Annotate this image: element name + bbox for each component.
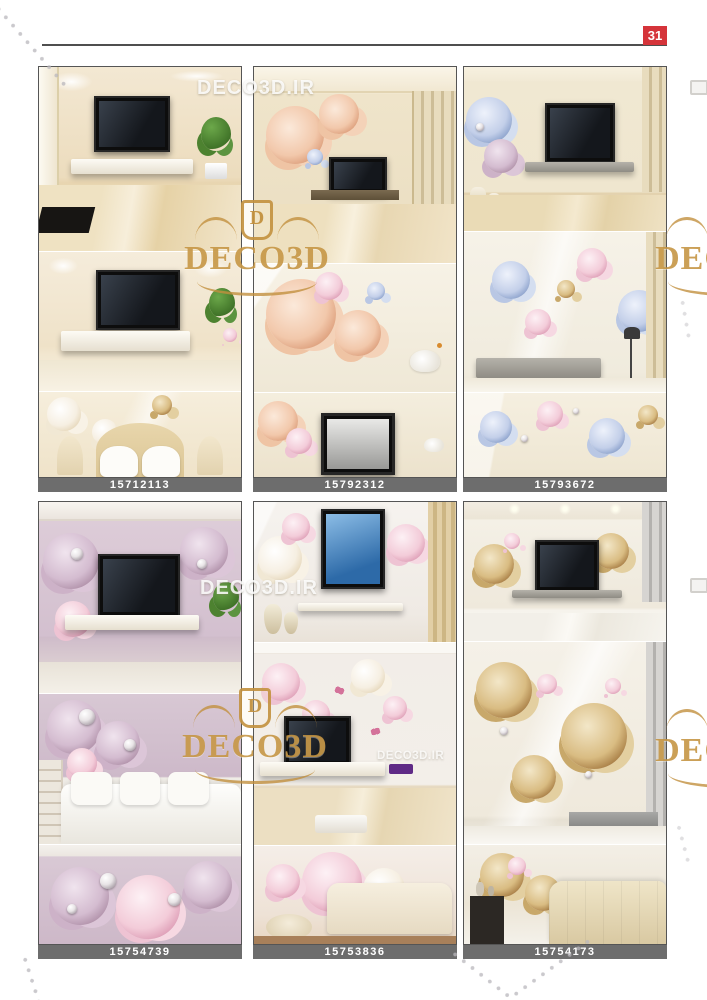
ceiling: [39, 502, 241, 521]
cushion: [120, 772, 160, 805]
pearl: [124, 739, 136, 751]
product-tile: 15754739: [38, 501, 242, 959]
floor: [464, 195, 666, 231]
floor-lamp: [630, 336, 632, 378]
product-tile: 15792312: [253, 66, 457, 492]
pearl: [476, 123, 484, 131]
flower-cluster: [492, 261, 530, 299]
sofa: [549, 881, 666, 944]
flower-cluster: [466, 97, 512, 143]
flower-cluster: [286, 428, 312, 454]
flower-cluster: [47, 397, 81, 431]
flower-cluster: [307, 149, 323, 165]
mural-closeup-scene: [39, 845, 241, 944]
swan: [424, 438, 444, 452]
flower-cluster: [480, 411, 512, 443]
flower-cluster: [258, 536, 302, 580]
coffee-table: [39, 207, 95, 233]
margin-glyph-icon: [690, 80, 707, 95]
swan: [410, 350, 440, 372]
media-console: [260, 762, 385, 776]
flower-cluster: [638, 405, 658, 425]
flower-cluster: [51, 867, 109, 925]
flower-cluster: [557, 280, 575, 298]
mural-scene: [464, 642, 666, 844]
media-console: [476, 358, 601, 377]
flower-cluster: [387, 524, 425, 562]
pearl: [197, 559, 207, 569]
mural-closeup-scene: [464, 393, 666, 477]
ceiling: [254, 643, 456, 654]
pearl: [521, 435, 528, 442]
pearl: [573, 408, 579, 414]
flower-cluster: [577, 248, 607, 278]
mural-scene: [464, 232, 666, 392]
flourish-icon: [666, 709, 707, 732]
product-code: 15793672: [463, 478, 667, 492]
product-photo: [463, 501, 667, 945]
window: [39, 67, 59, 199]
floor: [39, 360, 241, 391]
product-tile: 15712113: [38, 66, 242, 492]
lamp: [57, 436, 83, 475]
lamp: [197, 436, 223, 475]
flower-cluster: [351, 659, 385, 693]
media-console: [525, 162, 634, 172]
media-console: [71, 159, 192, 174]
tv-screen: [321, 509, 386, 589]
pearl: [168, 893, 181, 906]
pearl: [500, 727, 508, 735]
tv-screen: [329, 157, 388, 194]
pearl: [585, 771, 592, 778]
leaf-cluster: [474, 544, 514, 584]
media-console: [298, 603, 403, 611]
pearl-string-decoration: [20, 955, 45, 1000]
tv-screen: [321, 413, 396, 474]
slat-panel: [642, 67, 666, 192]
cushion: [168, 772, 208, 805]
cushion: [71, 772, 111, 805]
vase: [476, 882, 484, 896]
flower-cluster: [484, 139, 518, 173]
flower-cluster: [315, 272, 343, 300]
product-code: 15712113: [38, 478, 242, 492]
tv-screen: [94, 96, 171, 152]
accent-cushion: [389, 764, 413, 774]
flower-cluster: [266, 864, 300, 898]
room-scene: [254, 643, 456, 845]
product-photo: [253, 501, 457, 945]
lamp-shade: [624, 327, 640, 339]
floor: [254, 204, 456, 263]
slat-panel: [646, 232, 666, 392]
rug: [254, 936, 456, 944]
mural-closeup-scene: [39, 392, 241, 477]
tv-screen: [284, 716, 351, 766]
media-console: [61, 331, 190, 350]
flower-cluster: [43, 533, 99, 589]
ceiling: [254, 67, 456, 93]
product-code: 15753836: [253, 945, 457, 959]
curtain: [428, 502, 456, 642]
product-photo: [38, 66, 242, 478]
margin-glyph-icon: [690, 578, 707, 593]
coffee-table: [315, 815, 368, 833]
product-photo: [38, 501, 242, 945]
floor: [464, 613, 666, 641]
pillow: [142, 446, 180, 477]
swan-beak: [437, 343, 442, 348]
flower-cluster: [504, 533, 520, 549]
butterfly: [334, 686, 345, 696]
flower-cluster: [262, 663, 300, 701]
room-scene: [464, 502, 666, 641]
product-code: 15792312: [253, 478, 457, 492]
flower-cluster: [319, 94, 359, 134]
flower-cluster: [152, 395, 172, 415]
media-console: [512, 590, 621, 598]
flower-cluster: [589, 418, 625, 454]
flower-cluster: [383, 696, 407, 720]
tv-screen: [96, 270, 181, 330]
mural-closeup-scene: [254, 264, 456, 392]
leaf-cluster: [561, 703, 627, 769]
plant: [201, 117, 231, 151]
page-number-badge: 31: [643, 26, 667, 45]
tv-screen: [545, 103, 616, 163]
mural-and-sofa-scene: [39, 694, 241, 844]
flower-cluster: [184, 861, 232, 909]
flower-cluster: [282, 513, 310, 541]
room-scene: [39, 67, 241, 251]
room-scene: [254, 393, 456, 477]
leaf-cluster: [512, 755, 556, 799]
pearl-string-decoration: [678, 298, 694, 343]
flower-cluster: [525, 309, 551, 335]
product-tile: 15754173: [463, 501, 667, 959]
flower-cluster: [537, 401, 563, 427]
header-rule: [42, 44, 667, 46]
floor: [39, 662, 241, 693]
vase: [264, 604, 282, 634]
flower-cluster: [47, 700, 101, 754]
room-scene: [254, 846, 456, 944]
room-scene: [464, 845, 666, 944]
flower-cluster: [116, 875, 180, 939]
media-console: [65, 615, 198, 630]
crest-swash: [668, 280, 707, 296]
floor: [464, 378, 666, 392]
butterfly: [370, 727, 381, 736]
slat-panel: [642, 502, 666, 602]
catalog-page: 31: [0, 0, 707, 1000]
plant: [209, 288, 235, 318]
flower-cluster: [367, 282, 385, 300]
room-scene: [39, 502, 241, 693]
product-photo: [253, 66, 457, 478]
flourish-icon: [666, 217, 707, 240]
pearl: [100, 873, 116, 889]
room-scene: [464, 67, 666, 231]
tv-sparkle-band: [135, 559, 146, 612]
tv-stand: [311, 190, 400, 200]
room-scene: [39, 252, 241, 391]
side-table: [470, 896, 504, 944]
pearl-string-decoration: [674, 823, 693, 868]
room-scene: [254, 67, 456, 263]
floor: [464, 826, 666, 844]
planter: [205, 163, 227, 179]
leaf-cluster: [476, 662, 532, 718]
product-code: 15754173: [463, 945, 667, 959]
product-photo: [463, 66, 667, 478]
product-code: 15754739: [38, 945, 242, 959]
bookshelf: [39, 760, 63, 844]
room-scene: [254, 502, 456, 642]
flower-cluster: [335, 310, 381, 356]
pillow: [100, 446, 138, 477]
flower-cluster: [223, 328, 237, 342]
flower-cluster: [605, 678, 621, 694]
vase: [284, 612, 298, 634]
tv-screen: [535, 540, 600, 593]
tv-screen: [98, 554, 181, 617]
media-console: [569, 812, 658, 826]
product-tile: 15793672: [463, 66, 667, 492]
sofa: [327, 883, 452, 934]
flower-cluster: [537, 674, 557, 694]
crest-swash: [668, 772, 707, 788]
product-tile: 15753836: [253, 501, 457, 959]
mirrored-wardrobe: [412, 91, 456, 205]
plant: [213, 582, 239, 612]
